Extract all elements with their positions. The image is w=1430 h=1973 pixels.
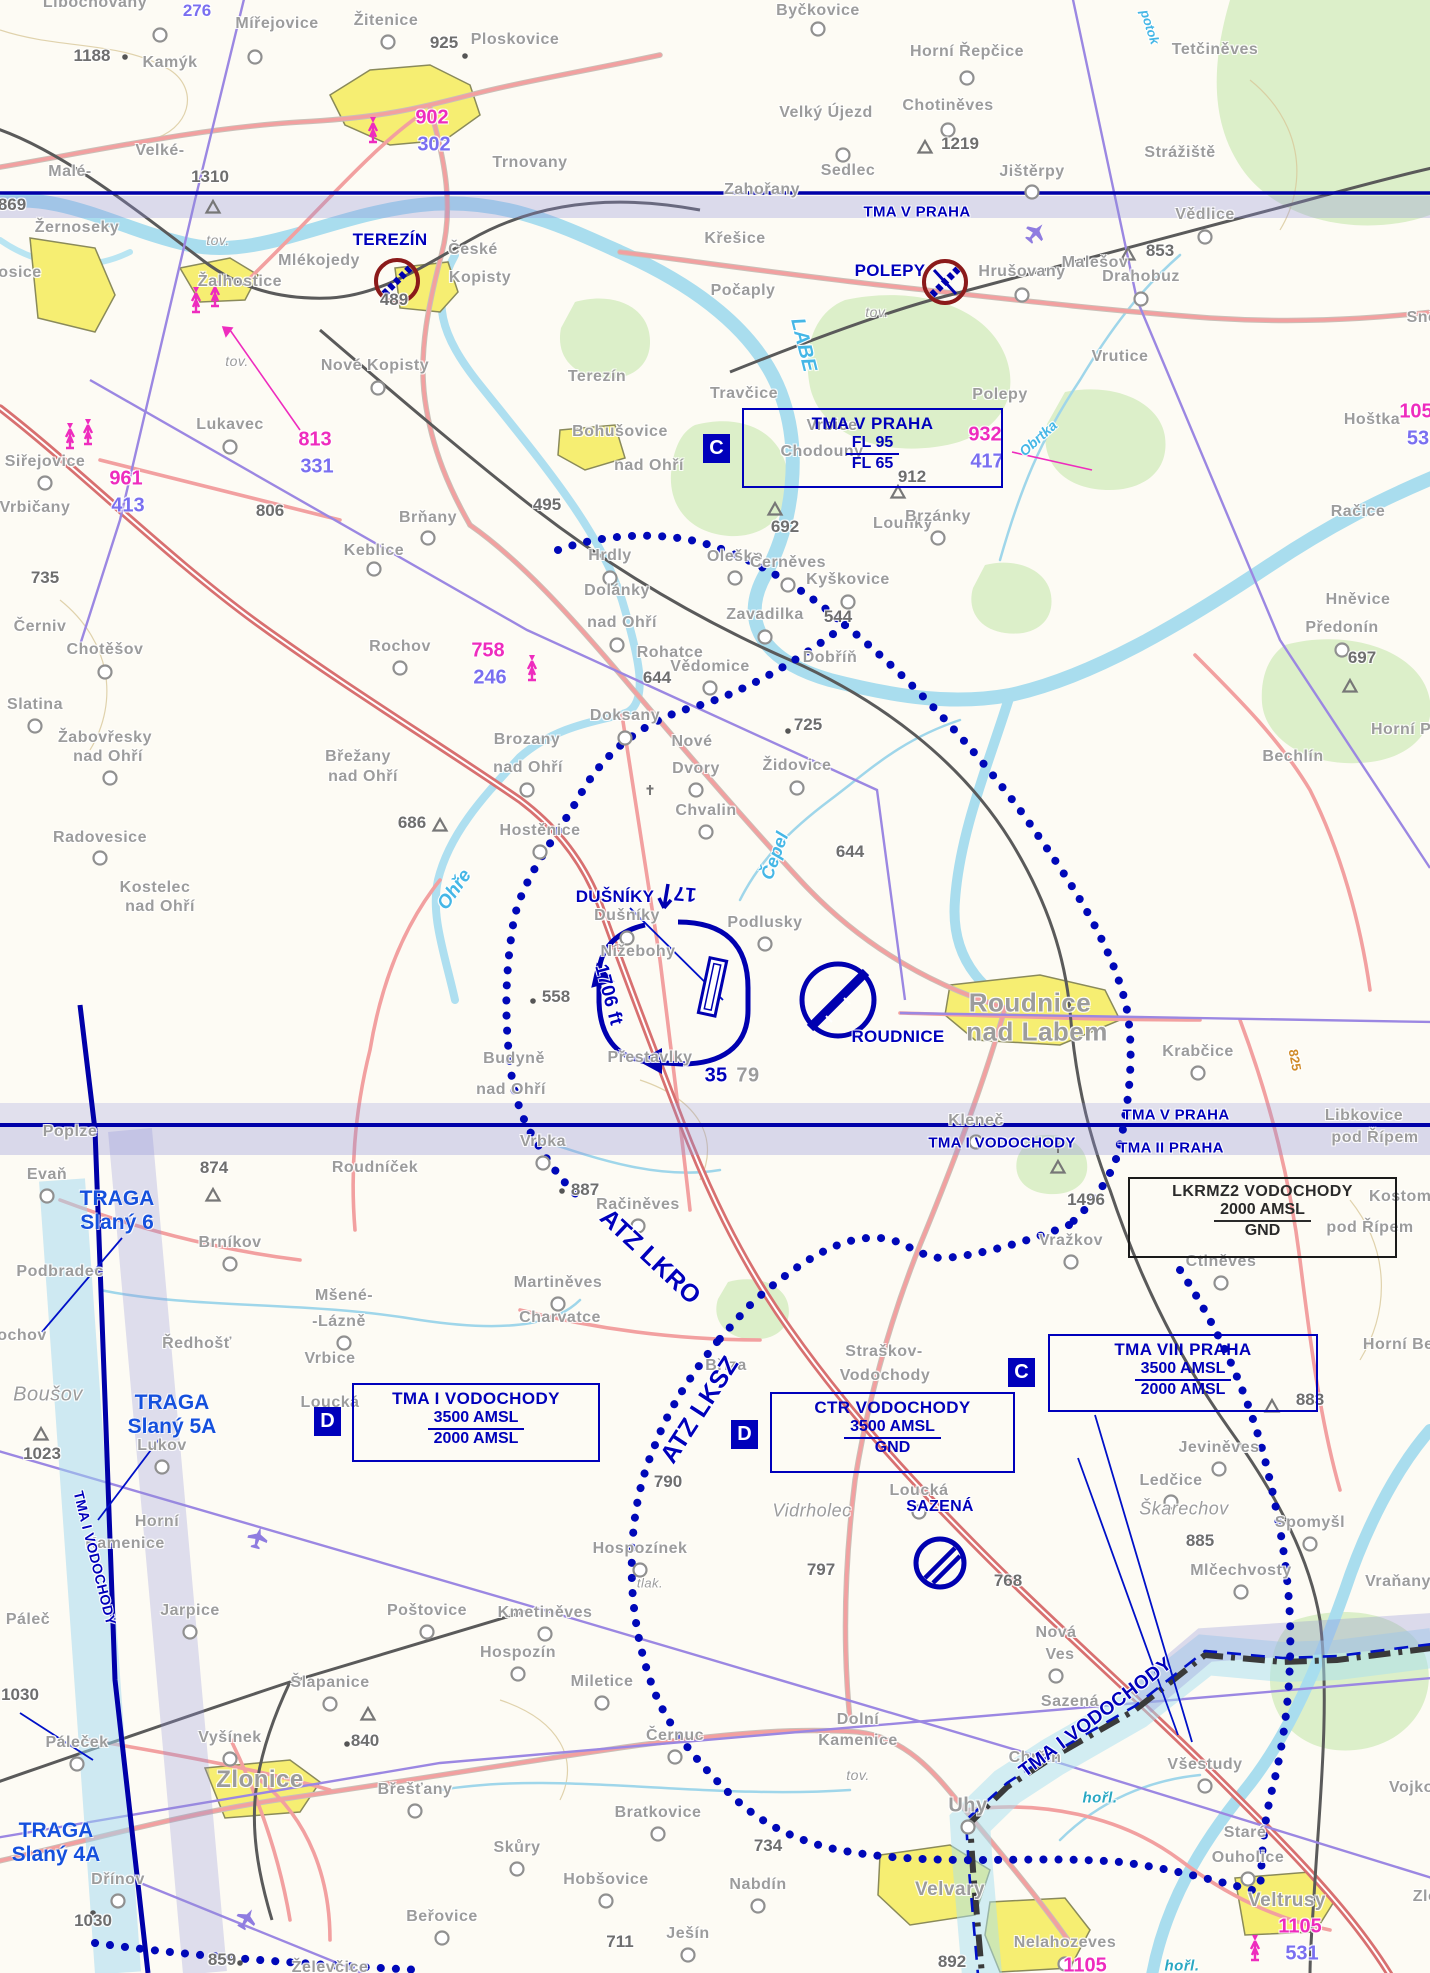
- river-label: Čepel: [757, 829, 794, 882]
- place-label: ochov: [0, 1327, 47, 1345]
- place-label: tlak.: [637, 1576, 663, 1591]
- elevation-label: 544: [824, 607, 852, 627]
- place-label: Vrbičany: [0, 499, 70, 517]
- place-label: Brňany: [399, 509, 457, 527]
- place-label: Brozany: [494, 731, 561, 749]
- obstacle-amsl-label: 758: [471, 640, 504, 663]
- airspace-class-badge: C: [703, 434, 730, 463]
- place-label: Krabčice: [1162, 1043, 1234, 1061]
- place-label: Černěves: [750, 554, 826, 572]
- place-label: Staré: [1224, 1824, 1267, 1842]
- place-label: Křešice: [704, 230, 765, 248]
- box-upper-limit: FL 95: [846, 434, 900, 455]
- airspace-class-badge: D: [731, 1420, 758, 1449]
- elevation-label: 1219: [941, 134, 979, 154]
- tma-viii-praha-box: TMA VIII PRAHA 3500 AMSL 2000 AMSL C: [1048, 1334, 1318, 1412]
- elevation-label: 790: [654, 1472, 682, 1492]
- place-label: Židovice: [763, 757, 832, 775]
- obstacle-agl-label: 246: [473, 667, 506, 690]
- airspace-class-badge: C: [1008, 1358, 1035, 1387]
- elevation-label: 925: [430, 33, 458, 53]
- elevation-label: 734: [754, 1836, 782, 1856]
- place-label: pod Řípem: [1331, 1129, 1418, 1147]
- place-label: Zavadilka: [726, 606, 803, 624]
- airspace-class-badge: D: [314, 1407, 341, 1436]
- place-label: Vrbice: [304, 1350, 355, 1368]
- place-label: Hrdly: [588, 547, 631, 565]
- place-label: Nová: [1035, 1624, 1076, 1642]
- elevation-label: 869: [0, 195, 26, 215]
- place-label: Poplze: [43, 1123, 98, 1141]
- box-upper-limit: 3500 AMSL: [844, 1418, 941, 1439]
- place-label: Brníkov: [198, 1234, 261, 1252]
- box-title: TMA V PRAHA: [744, 414, 1001, 434]
- place-label: tov.: [846, 1767, 870, 1783]
- place-label: Kmetiněves: [498, 1604, 593, 1622]
- place-label: Ješín: [666, 1925, 709, 1943]
- place-label: Ouholice: [1212, 1849, 1284, 1867]
- elevation-label: 1030: [1, 1685, 39, 1705]
- box-lower-limit: FL 65: [744, 455, 1001, 473]
- place-label: Račice: [1331, 503, 1386, 521]
- place-label: Sně: [1407, 309, 1430, 327]
- place-label: Veltrusy: [1248, 1890, 1326, 1912]
- place-label: Hoštka: [1344, 411, 1400, 429]
- elevation-label: 840: [351, 1731, 379, 1751]
- place-label: Zlosyň: [1413, 1888, 1430, 1906]
- airspace-rotated-label: ATZ LKRO: [594, 1203, 707, 1311]
- place-label: tov.: [865, 304, 889, 320]
- place-label: Hostěnice: [500, 822, 581, 840]
- tma-i-vodochody-box: TMA I VODOCHODY 3500 AMSL 2000 AMSL D: [352, 1383, 600, 1462]
- place-label: Chotěšov: [67, 641, 144, 659]
- elevation-label: 644: [836, 842, 864, 862]
- box-title: TMA I VODOCHODY: [354, 1389, 598, 1409]
- airfield-name-label: ROUDNICE: [851, 1027, 944, 1047]
- elevation-label: 1023: [23, 1444, 61, 1464]
- place-label: nad Ohří: [614, 457, 684, 475]
- place-label: Bohušovice: [572, 423, 668, 441]
- place-label: Budyně: [483, 1050, 545, 1068]
- place-label: Jarpice: [160, 1602, 220, 1620]
- place-label: Kyškovice: [806, 571, 890, 589]
- place-label: Vrbka: [520, 1133, 566, 1151]
- place-label: Kamýk: [143, 54, 198, 72]
- elevation-label: 887: [571, 1180, 599, 1200]
- elevation-label: 1310: [191, 167, 229, 187]
- place-label: Vodochody: [840, 1367, 930, 1385]
- river-label: Ohře: [433, 866, 476, 915]
- place-label: Zlonice: [216, 1766, 304, 1794]
- place-label: hořl.: [1165, 1958, 1200, 1973]
- elevation-label: 853: [1146, 241, 1174, 261]
- place-label: Ledčice: [1139, 1472, 1202, 1490]
- place-label: Chvalin: [675, 802, 736, 820]
- place-label: Skůry: [494, 1839, 541, 1857]
- place-label: nad Ohří: [328, 768, 398, 786]
- place-label: Travčice: [710, 385, 778, 403]
- elevation-label: 1188: [74, 46, 111, 66]
- elevation-label: 711: [606, 1932, 633, 1952]
- place-label: Hospozínek: [593, 1540, 688, 1558]
- place-label: Kopisty: [449, 269, 511, 287]
- place-label: Kostelec: [120, 879, 191, 897]
- place-label: 79: [736, 1065, 759, 1088]
- place-label: Lukavec: [196, 416, 264, 434]
- place-label: Dušníky: [594, 907, 660, 925]
- place-label: Horní: [135, 1513, 179, 1531]
- place-label: Ředhošť: [162, 1335, 232, 1353]
- place-label: Kamenice: [818, 1732, 898, 1750]
- place-label: Evaň: [27, 1166, 67, 1184]
- place-label: Nabdín: [729, 1876, 786, 1894]
- place-label: Siřejovice: [5, 453, 86, 471]
- airspace-band-label: TMA V PRAHA: [1123, 1107, 1230, 1124]
- place-label: hořl.: [1083, 1790, 1118, 1807]
- place-label: Charvatce: [519, 1309, 601, 1327]
- place-label: Nížebohy: [600, 943, 675, 961]
- elevation-label: 697: [1348, 648, 1376, 668]
- place-label: Kleneč: [948, 1112, 1003, 1130]
- place-label: Hospozín: [480, 1644, 556, 1662]
- tma-v-praha-box: TMA V PRAHA FL 95 FL 65 C: [742, 408, 1003, 488]
- place-label: Dolánky: [584, 582, 650, 600]
- obstacle-amsl-label: 1105: [1063, 1955, 1106, 1973]
- place-label: Šlapanice: [290, 1674, 369, 1692]
- traga-route-label: TRAGASlaný 6: [80, 1187, 155, 1235]
- runway-label: 17: [673, 881, 698, 906]
- airspace-rotated-label: TMA I VODOCHODY: [71, 1489, 120, 1627]
- place-label: Vědlice: [1175, 206, 1235, 224]
- elevation-label: 495: [533, 495, 561, 515]
- lkrmz2-vodochody-box: LKRMZ2 VODOCHODY 2000 AMSL GND: [1128, 1177, 1397, 1258]
- place-label: Slatina: [7, 696, 63, 714]
- place-label: Jeviněves: [1178, 1439, 1259, 1457]
- box-lower-limit: GND: [772, 1439, 1013, 1457]
- elevation-label: 806: [256, 501, 284, 521]
- box-lower-limit: 2000 AMSL: [354, 1430, 598, 1448]
- place-label: Libkovice: [1325, 1107, 1403, 1125]
- airspace-rotated-label: TMA I VODOCHODY: [1015, 1653, 1176, 1782]
- place-label: nad Ohří: [587, 614, 657, 632]
- place-label: Doksany: [590, 707, 660, 725]
- place-label: Páleč: [6, 1611, 50, 1629]
- vfr-chart: LibochovanyMířejoviceŽitenicePloskoviceK…: [0, 0, 1430, 1973]
- airfield-name-label: SAZENÁ: [906, 1498, 974, 1516]
- place-label: Vědomice: [670, 658, 750, 676]
- place-label: Škarechov: [1139, 1499, 1229, 1520]
- obstacle-amsl-label: 105: [1399, 401, 1430, 424]
- place-label: Horní Řepčice: [910, 43, 1024, 61]
- elevation-label: 692: [771, 517, 799, 537]
- place-label: Tetčiněves: [1172, 41, 1259, 59]
- place-label: Podlusky: [727, 914, 802, 932]
- place-label: Byčkovice: [776, 2, 860, 20]
- place-label: Páleček: [45, 1734, 108, 1752]
- place-label: Vraňany: [1365, 1573, 1430, 1591]
- box-upper-limit: 3500 AMSL: [1135, 1360, 1232, 1381]
- place-label: Nové Kopisty: [321, 357, 429, 375]
- place-label: Hněvice: [1326, 591, 1391, 609]
- elevation-label: 644: [643, 668, 671, 688]
- place-label: Terezín: [568, 368, 626, 386]
- place-label: Beřovice: [406, 1908, 478, 1926]
- place-label: nad Ohří: [493, 759, 563, 777]
- elevation-label: 558: [542, 987, 570, 1007]
- place-label: Přestavlky: [607, 1049, 692, 1067]
- box-upper-limit: 2000 AMSL: [1214, 1201, 1311, 1222]
- place-label: Rochov: [369, 638, 431, 656]
- box-title: LKRMZ2 VODOCHODY: [1130, 1183, 1395, 1201]
- box-upper-limit: 3500 AMSL: [428, 1409, 525, 1430]
- box-lower-limit: GND: [1130, 1222, 1395, 1240]
- place-label: Mšené-: [315, 1287, 373, 1305]
- elevation-label: 768: [994, 1571, 1022, 1591]
- place-label: Brzánky: [905, 508, 971, 526]
- place-label: Jištěrpy: [999, 163, 1064, 181]
- place-label: Hrušovany: [978, 263, 1065, 281]
- place-label: Dvory: [672, 760, 720, 778]
- airspace-rotated-label: ATZ LKSZ: [655, 1351, 745, 1469]
- place-label: osice: [0, 264, 42, 282]
- place-label: Horní Beřkovice: [1363, 1336, 1430, 1354]
- place-label: tov.: [206, 232, 230, 248]
- place-label: Vidrholec: [772, 1501, 851, 1522]
- obstacle-agl-label: 53: [1407, 428, 1429, 451]
- place-label: Straškov-: [845, 1343, 922, 1361]
- place-label: Ploskovice: [471, 31, 560, 49]
- place-label: Mlčechvosty: [1190, 1562, 1292, 1580]
- place-label: Roudnice: [969, 988, 1091, 1019]
- place-label: Dobříň: [803, 649, 858, 667]
- obstacle-agl-label: 531: [1285, 1943, 1318, 1966]
- place-label: Vyšínek: [198, 1729, 261, 1747]
- airspace-band-label: TMA II PRAHA: [1118, 1140, 1224, 1157]
- place-label: Velké-: [135, 142, 184, 160]
- place-label: Malešov: [1062, 254, 1129, 272]
- obstacle-amsl-label: 902: [415, 107, 448, 130]
- place-label: Hobšovice: [563, 1871, 648, 1889]
- place-label: Mlékojedy: [278, 252, 360, 270]
- elevation-label: 885: [1186, 1531, 1214, 1551]
- river-label: Obrtka: [1016, 417, 1060, 459]
- place-label: Nové: [671, 733, 712, 751]
- obstacle-amsl-label: 961: [109, 468, 142, 491]
- river-label: potok: [1137, 8, 1162, 46]
- elevation-label: 725: [794, 715, 822, 735]
- place-label: Želevčice: [292, 1959, 369, 1973]
- place-label: Libochovany: [43, 0, 147, 12]
- place-label: Ves: [1045, 1646, 1074, 1664]
- place-label: Vražkov: [1039, 1232, 1103, 1250]
- box-title: TMA VIII PRAHA: [1050, 1340, 1316, 1360]
- elevation-label: 735: [31, 568, 59, 588]
- elevation-label: 1030: [74, 1911, 112, 1931]
- place-label: Předonín: [1305, 619, 1378, 637]
- airspace-band-label: TMA I VODOCHODY: [928, 1135, 1075, 1152]
- place-label: Boušov: [13, 1384, 83, 1407]
- elevation-label: 874: [200, 1158, 228, 1178]
- place-label: Mířejovice: [235, 15, 318, 33]
- elevation-label: 825: [1286, 1048, 1305, 1072]
- place-label: Polepy: [972, 386, 1027, 404]
- place-label: nad Ohří: [476, 1081, 546, 1099]
- place-label: Roudníček: [332, 1159, 418, 1177]
- obstacle-amsl-label: 1105: [1278, 1916, 1321, 1939]
- place-label: -Lázně: [312, 1313, 366, 1331]
- place-label: Břešťany: [378, 1781, 453, 1799]
- river-label: LABE: [785, 316, 820, 374]
- place-label: Sedlec: [821, 162, 876, 180]
- obstacle-agl-label: 302: [417, 134, 450, 157]
- traga-route-label: TRAGASlaný 4A: [12, 1819, 101, 1867]
- place-label: Keblice: [344, 542, 404, 560]
- place-label: nad Labem: [966, 1017, 1108, 1048]
- place-label: Radovesice: [53, 829, 147, 847]
- elevation-label: 686: [398, 813, 426, 833]
- place-label: Velvary: [915, 1879, 985, 1901]
- place-label: Vojkovice: [1389, 1779, 1430, 1797]
- ctr-vodochody-box: CTR VODOCHODY 3500 AMSL GND D: [770, 1392, 1015, 1473]
- place-label: Žalhostice: [198, 273, 282, 291]
- place-label: Černuc: [646, 1727, 704, 1745]
- place-label: Žabovřesky: [58, 729, 152, 747]
- place-label: České: [448, 241, 498, 259]
- place-label: Martiněves: [514, 1274, 603, 1292]
- place-label: Bratkovice: [615, 1804, 702, 1822]
- place-label: Chotiněves: [902, 97, 993, 115]
- place-label: Bechlín: [1262, 748, 1323, 766]
- place-label: nad Ohří: [125, 898, 195, 916]
- place-label: Trnovany: [492, 154, 567, 172]
- elevation-label: 1496: [1067, 1190, 1105, 1210]
- place-label: Všestudy: [1167, 1756, 1242, 1774]
- elevation-label: 489: [380, 290, 408, 310]
- place-label: Černiv: [14, 618, 67, 636]
- place-label: Poštovice: [387, 1602, 467, 1620]
- obstacle-agl-label: 413: [111, 495, 144, 518]
- labels-layer: LibochovanyMířejoviceŽitenicePloskoviceK…: [0, 0, 1430, 1973]
- airfield-name-label: TEREZÍN: [353, 230, 428, 250]
- elevation-label: 797: [807, 1560, 835, 1580]
- airfield-name-label: DUŠNÍKY: [576, 887, 655, 907]
- obstacle-agl-label: 331: [300, 456, 333, 479]
- place-label: Žitenice: [354, 12, 418, 30]
- place-label: Dolní: [837, 1711, 880, 1729]
- place-label: Podbradec: [16, 1263, 103, 1281]
- elevation-label: 892: [938, 1952, 966, 1972]
- place-label: Dřínov: [91, 1871, 145, 1889]
- place-label: Miletice: [571, 1673, 634, 1691]
- traga-route-label: TRAGASlaný 5A: [128, 1391, 217, 1439]
- place-label: Malé-: [48, 163, 91, 181]
- elevation-label: 276: [183, 1, 211, 21]
- place-label: nad Ohří: [73, 748, 143, 766]
- place-label: Spomyšl: [1275, 1514, 1345, 1532]
- place-label: Vrutice: [1092, 348, 1149, 366]
- place-label: tov.: [225, 353, 249, 369]
- box-lower-limit: 2000 AMSL: [1050, 1381, 1316, 1399]
- place-label: Žernoseky: [35, 219, 120, 237]
- place-label: Velký Újezd: [779, 104, 873, 122]
- place-label: Břežany: [325, 748, 391, 766]
- place-label: Lukov: [137, 1437, 187, 1455]
- place-label: Strážiště: [1144, 144, 1215, 162]
- place-label: Počaply: [711, 282, 776, 300]
- runway-label: 35: [705, 1065, 728, 1088]
- obstacle-amsl-label: 813: [298, 429, 331, 452]
- place-label: Horní Počaply: [1371, 721, 1430, 739]
- runway-label: 1706 ft: [589, 962, 626, 1028]
- airspace-band-label: TMA V PRAHA: [864, 204, 971, 221]
- place-label: Zahořany: [724, 181, 800, 199]
- place-label: Uhy: [948, 1795, 987, 1818]
- box-title: CTR VODOCHODY: [772, 1398, 1013, 1418]
- airfield-name-label: POLEPY: [855, 261, 926, 281]
- place-label: Nelahozeves: [1014, 1934, 1116, 1952]
- elevation-label: 859: [208, 1950, 236, 1970]
